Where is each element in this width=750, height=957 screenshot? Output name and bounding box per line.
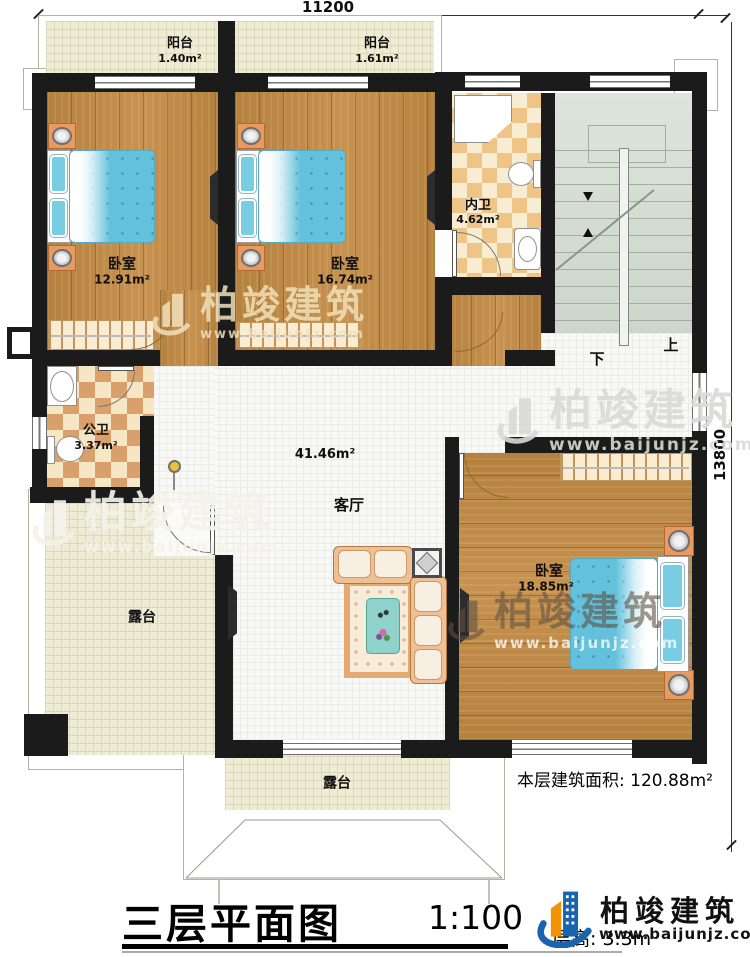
title-underline-shadow — [122, 951, 622, 953]
nightstand — [237, 123, 265, 149]
toilet — [508, 162, 534, 186]
window — [590, 75, 670, 88]
room-label-living: 客厅 — [334, 498, 364, 514]
balcony-door-window — [268, 76, 368, 89]
roof-outline — [183, 805, 505, 883]
wall — [505, 437, 707, 453]
pillow — [239, 199, 256, 237]
floor-drain — [168, 460, 181, 473]
sofa-cushion — [374, 550, 407, 578]
dimension-line-right — [731, 22, 732, 852]
window — [32, 417, 47, 449]
bed — [570, 558, 658, 670]
room-area-public-bath: 3.37m² — [74, 440, 117, 452]
floor-area-label: 本层建筑面积: — [517, 771, 625, 791]
brand-logo-icon — [534, 882, 594, 948]
window — [692, 373, 707, 431]
room-area-ensuite-bath: 4.62m² — [456, 214, 499, 226]
room-area-bedroom3: 18.85m² — [518, 581, 574, 594]
tv — [210, 170, 218, 225]
wall-bottom — [401, 740, 512, 758]
nightstand — [664, 670, 694, 700]
sink-basin — [50, 371, 74, 402]
wall — [435, 92, 452, 230]
stair-direction-arrow — [583, 228, 593, 237]
brand-url: www.baijunjz.com — [599, 925, 750, 943]
stair-break-line — [552, 178, 662, 278]
sliding-door — [283, 743, 401, 755]
wall-balcony-divider — [218, 21, 235, 366]
window — [512, 743, 632, 755]
tv — [228, 585, 237, 640]
page-title: 三层平面图 — [122, 890, 342, 950]
room-label-public-bath: 公卫 — [83, 424, 109, 438]
nightstand — [664, 526, 694, 556]
wall — [435, 277, 555, 295]
room-area-bedroom2: 16.74m² — [317, 274, 373, 287]
door-leaf-terrace — [210, 505, 215, 555]
dimension-tick — [693, 9, 704, 20]
room-area-living: 41.46m² — [295, 448, 355, 462]
room-label-terrace-bottom: 露台 — [323, 777, 351, 792]
stairs-down-label: 下 — [589, 352, 604, 368]
sofa-cushion — [338, 550, 371, 578]
door-leaf-bedroom3 — [459, 453, 464, 499]
wall — [140, 416, 154, 488]
bed — [69, 150, 155, 243]
floor-drain-stem — [173, 473, 175, 490]
wall-living-left — [215, 555, 233, 758]
floor-area-value: 120.88m² — [630, 771, 713, 791]
brand-name: 柏竣建筑 — [600, 888, 740, 930]
nightstand — [48, 245, 76, 271]
room-label-bedroom2: 卧室 — [331, 258, 359, 273]
stairs-up-label: 上 — [663, 338, 678, 354]
coffee-table — [366, 598, 400, 654]
pillow — [661, 563, 684, 609]
pillow — [50, 155, 67, 193]
wall-bottom — [215, 740, 283, 758]
room-area-balcony1: 1.40m² — [158, 53, 201, 65]
dimension-top-label: 11200 — [302, 0, 354, 16]
column — [24, 714, 68, 756]
toilet-tank — [533, 160, 541, 188]
room-label-terrace-left: 露台 — [128, 611, 156, 626]
wall-niche — [7, 327, 35, 359]
tv — [427, 170, 435, 225]
room-label-balcony1: 阳台 — [167, 37, 193, 51]
floor-area-total: 本层建筑面积: 120.88m² — [517, 766, 713, 791]
wall — [32, 350, 160, 366]
wall — [235, 350, 447, 366]
wall-bedroom3-left — [445, 437, 459, 740]
window — [465, 75, 520, 88]
wall — [30, 487, 154, 503]
room-label-balcony2: 阳台 — [364, 37, 390, 51]
wall — [505, 350, 555, 366]
tv — [460, 588, 469, 643]
pillow — [50, 199, 67, 237]
sink-basin — [518, 236, 537, 262]
sofa-cushion — [414, 615, 442, 646]
bed — [258, 150, 346, 243]
pillow — [661, 617, 684, 663]
nightstand — [48, 123, 76, 149]
dimension-right-label: 13800 — [713, 429, 729, 481]
nightstand — [237, 245, 265, 271]
wall-bottom — [632, 740, 707, 758]
room-label-bedroom3: 卧室 — [535, 565, 563, 580]
stair-direction-arrow — [583, 192, 593, 201]
sofa-cushion — [414, 581, 442, 612]
room-area-bedroom1: 12.91m² — [94, 274, 150, 287]
wardrobe — [560, 453, 692, 481]
title-underline — [122, 944, 508, 949]
scale-label: 1:100 — [428, 898, 523, 937]
room-label-ensuite-bath: 内卫 — [465, 199, 491, 213]
wardrobe — [237, 322, 361, 348]
balcony-door-window — [95, 76, 195, 89]
floor-plan: 11200 13800 — [0, 0, 750, 957]
toilet-tank — [47, 436, 55, 464]
room-label-bedroom1: 卧室 — [108, 258, 136, 273]
room-area-balcony2: 1.61m² — [355, 53, 398, 65]
sofa-cushion — [414, 649, 442, 680]
pillow — [239, 155, 256, 193]
